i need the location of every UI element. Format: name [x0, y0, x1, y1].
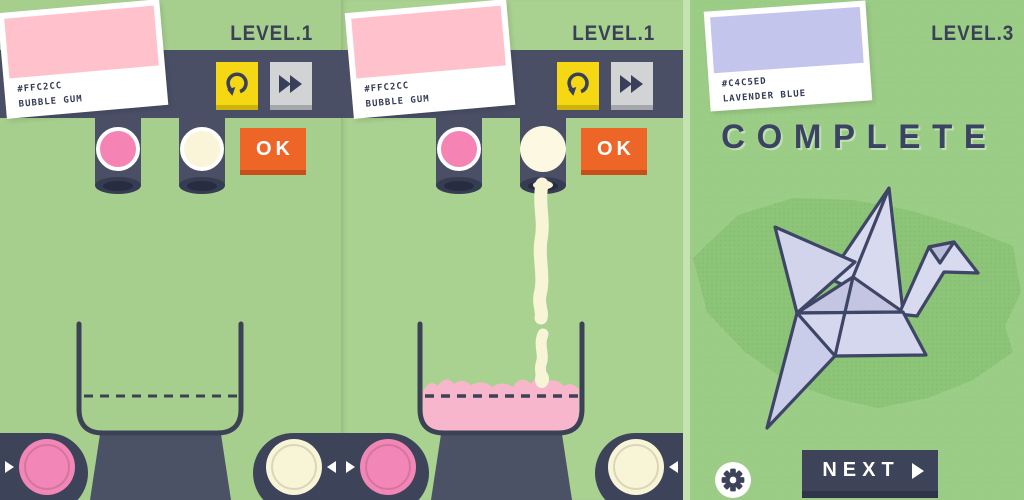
pouring-stream-upper: [540, 184, 543, 318]
fast-forward-icon: [615, 69, 649, 99]
button-ring: [613, 444, 659, 490]
three-screenshot-strip: LEVEL.1 #FFC2CC BUBBLE GUM: [0, 0, 1024, 500]
pink-liquid: [423, 377, 579, 431]
cream-color-selector-button[interactable]: [608, 439, 664, 495]
swipe-left-icon: [327, 461, 336, 473]
beaker-outline: [79, 324, 241, 433]
undo-icon: [220, 66, 254, 102]
swatch-color-area: [710, 7, 864, 73]
origami-crane: [767, 188, 978, 428]
gear-icon: [720, 467, 746, 493]
fast-forward-icon: [274, 69, 308, 99]
undo-icon: [561, 66, 595, 102]
stream-splash: [535, 370, 549, 388]
ok-button[interactable]: OK: [240, 128, 306, 175]
cream-dispenser-valve-button-active[interactable]: [520, 126, 566, 172]
tube-opening-hole: [187, 181, 217, 191]
game-screen-level3-complete: LEVEL.3 #C4C5ED LAVENDER BLUE COMPLETE: [683, 0, 1024, 500]
ok-label: OK: [256, 138, 294, 160]
ok-label: OK: [597, 138, 635, 160]
complete-banner: COMPLETE: [688, 118, 1019, 157]
beaker-pedestal: [90, 435, 231, 500]
ok-button[interactable]: OK: [581, 128, 647, 175]
beaker-outline: [420, 324, 582, 433]
cream-dispenser-valve-button[interactable]: [180, 127, 224, 171]
button-ring: [365, 444, 411, 490]
color-swatch-card: #FFC2CC BUBBLE GUM: [345, 0, 516, 119]
color-swatch-card: #C4C5ED LAVENDER BLUE: [704, 0, 873, 111]
undo-button[interactable]: [557, 62, 599, 110]
cream-color-selector-button[interactable]: [266, 439, 322, 495]
game-screen-level1-pouring: LEVEL.1 #FFC2CC BUBBLE GUM: [341, 0, 683, 500]
level-indicator: LEVEL.1: [230, 22, 313, 46]
tube-opening-hole: [528, 181, 558, 191]
pink-color-selector-button[interactable]: [360, 439, 416, 495]
button-ring: [271, 444, 317, 490]
undo-button[interactable]: [216, 62, 258, 110]
beaker-pedestal: [431, 435, 572, 500]
tube-opening-hole: [444, 181, 474, 191]
swipe-left-icon: [669, 461, 678, 473]
fast-forward-button[interactable]: [611, 62, 653, 110]
fast-forward-button[interactable]: [270, 62, 312, 110]
pouring-stream-lower: [540, 334, 543, 382]
pink-dispenser-valve-button[interactable]: [437, 127, 481, 171]
next-button[interactable]: NEXT: [802, 450, 938, 498]
brush-blob-background: [693, 198, 1021, 408]
next-label: NEXT: [816, 459, 899, 482]
tube-opening-hole: [103, 181, 133, 191]
level-indicator: LEVEL.1: [572, 22, 655, 46]
button-ring: [24, 444, 70, 490]
next-arrow-icon: [912, 463, 924, 479]
color-swatch-card: #FFC2CC BUBBLE GUM: [0, 0, 168, 119]
pink-color-selector-button[interactable]: [19, 439, 75, 495]
pink-dispenser-valve-button[interactable]: [96, 127, 140, 171]
panel-edge-strip: [683, 0, 690, 500]
level-indicator: LEVEL.3: [931, 22, 1014, 46]
swipe-right-icon: [346, 461, 355, 473]
settings-button[interactable]: [715, 462, 751, 498]
game-screen-level1-ready: LEVEL.1 #FFC2CC BUBBLE GUM: [0, 0, 341, 500]
swipe-right-icon: [5, 461, 14, 473]
